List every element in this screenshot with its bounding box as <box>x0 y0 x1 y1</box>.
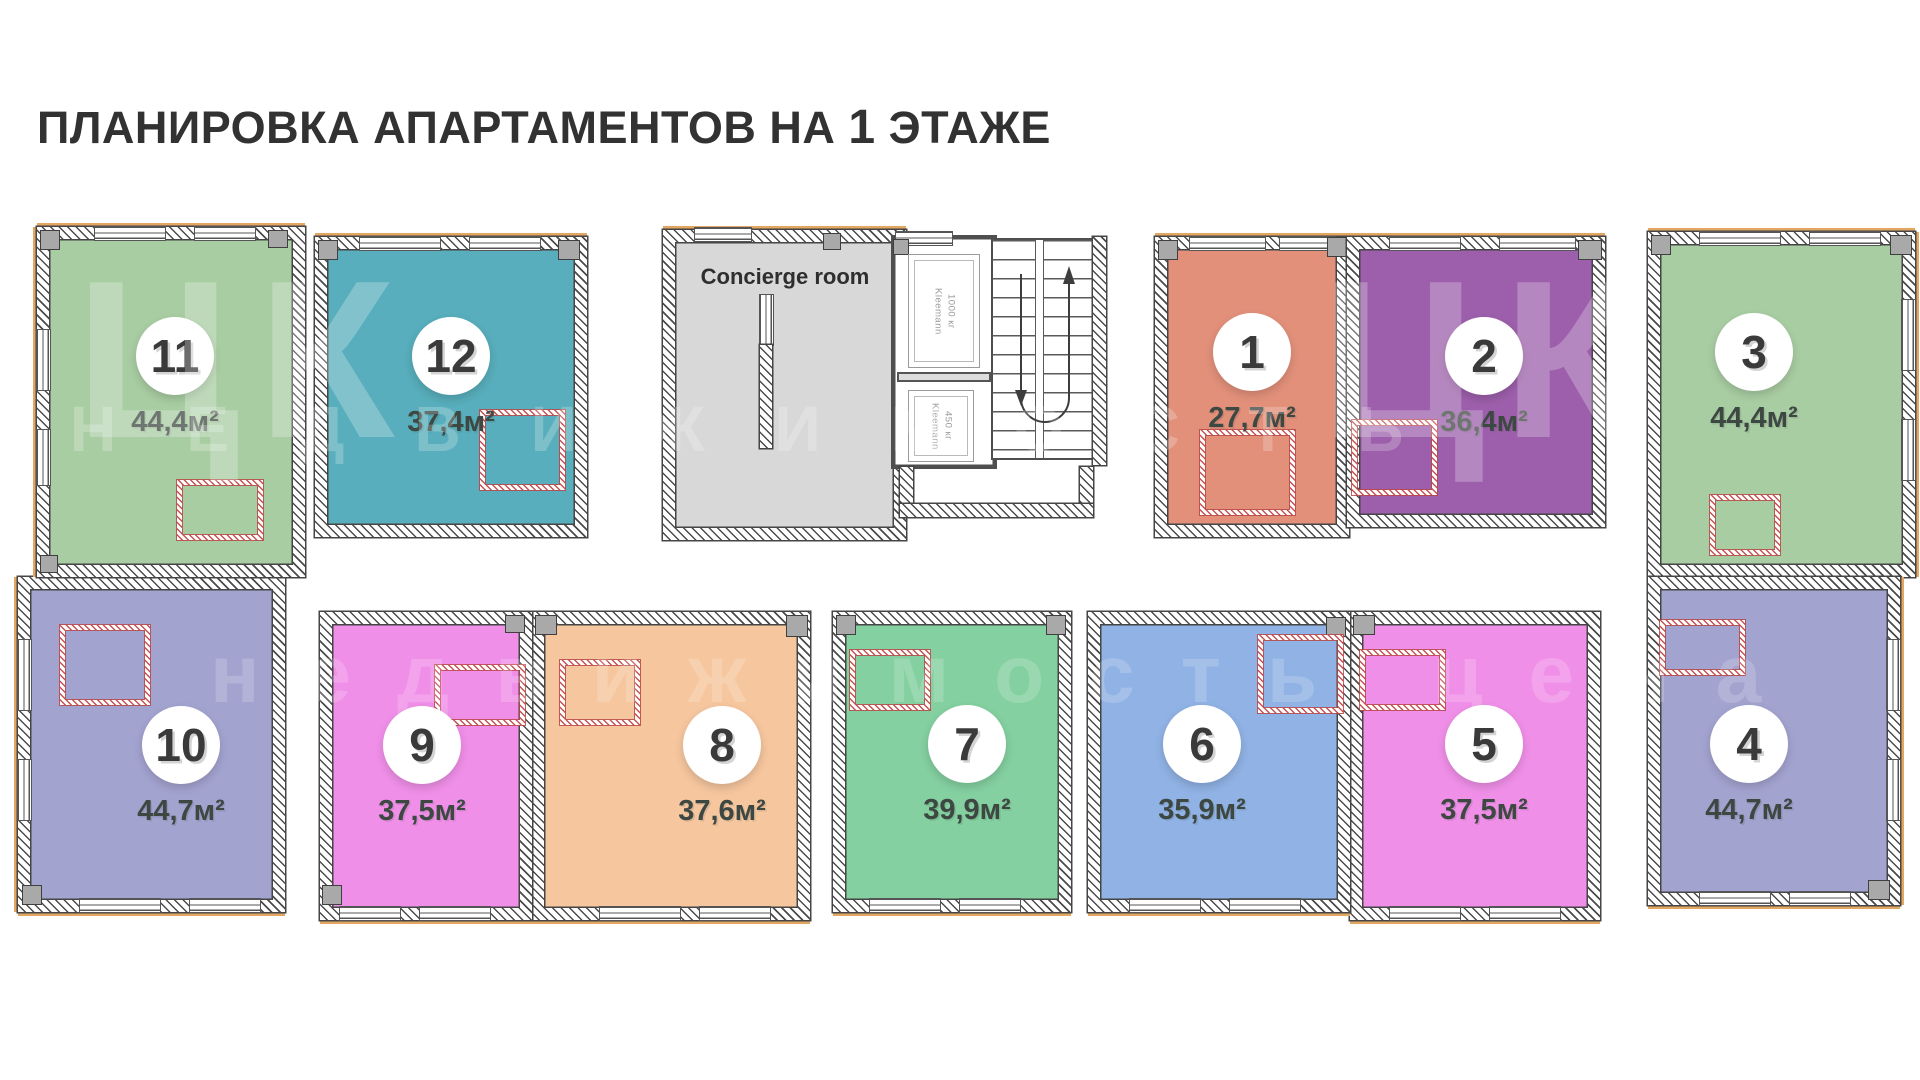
column <box>1890 235 1912 255</box>
window <box>1390 237 1460 250</box>
concierge-room-label: Concierge room <box>665 264 905 290</box>
column <box>786 615 808 637</box>
partition-wall <box>60 625 150 705</box>
apartment-number: 4 <box>1736 717 1762 771</box>
apartment-number: 10 <box>155 718 206 772</box>
elevator-capacity-label: 1000 кг <box>945 294 957 329</box>
apartment-12-number-badge[interactable]: 12 <box>412 317 490 395</box>
column <box>893 239 909 255</box>
column <box>40 230 60 250</box>
column <box>1353 615 1375 635</box>
window <box>80 899 160 912</box>
window <box>1902 420 1915 480</box>
apartment-11-area-label: 44,4м² <box>65 406 285 439</box>
apartment-number: 7 <box>954 717 980 771</box>
window <box>18 640 31 710</box>
window <box>190 899 260 912</box>
partition-wall <box>1360 650 1445 710</box>
window <box>1490 907 1560 920</box>
column <box>318 240 338 260</box>
column <box>823 233 841 250</box>
window <box>1902 300 1915 370</box>
apartment-4-number-badge[interactable]: 4 <box>1710 705 1788 783</box>
window <box>1700 892 1770 905</box>
apartment-number: 2 <box>1471 329 1497 383</box>
apartment-1-area-label: 27,7м² <box>1142 402 1362 435</box>
column <box>22 885 42 905</box>
apartment-9-number-badge[interactable]: 9 <box>383 706 461 784</box>
column <box>322 885 342 905</box>
apartment-3-number-badge[interactable]: 3 <box>1715 313 1793 391</box>
column <box>1046 615 1066 635</box>
apartment-number: 11 <box>151 329 200 383</box>
elevator-cabin-small-inner: Kleemann 450 кг <box>914 396 968 456</box>
column <box>535 615 557 635</box>
apartment-4-area-label: 44,7м² <box>1639 794 1859 827</box>
window <box>195 227 255 240</box>
lobby-wall <box>900 504 1093 517</box>
apartment-6-area-label: 35,9м² <box>1092 794 1312 827</box>
window <box>360 237 440 250</box>
window <box>340 907 400 920</box>
window <box>1130 899 1200 912</box>
apartment-2-area-label: 36,4м² <box>1374 406 1594 439</box>
apartment-10-number-badge[interactable]: 10 <box>142 706 220 784</box>
apartment-7-area-label: 39,9м² <box>857 794 1077 827</box>
apartment-6-number-badge[interactable]: 6 <box>1163 705 1241 783</box>
window <box>760 295 773 345</box>
window <box>37 330 50 390</box>
column <box>505 615 525 633</box>
column <box>836 615 856 635</box>
window <box>1790 892 1850 905</box>
apartment-10-area-label: 44,7м² <box>71 795 291 828</box>
apartment-number: 3 <box>1741 325 1767 379</box>
apartment-number: 1 <box>1239 325 1265 379</box>
apartment-number: 8 <box>709 718 735 772</box>
window <box>1887 760 1900 820</box>
partition-wall <box>177 480 263 540</box>
apartment-number: 5 <box>1471 717 1497 771</box>
apartment-number: 12 <box>425 329 476 383</box>
elevator-capacity-label: 450 кг <box>942 411 954 440</box>
apartment-12-area-label: 37,4м² <box>341 406 561 439</box>
partition-wall <box>1710 495 1780 555</box>
window <box>37 430 50 485</box>
stair-wall <box>1093 237 1106 465</box>
column <box>1158 240 1178 260</box>
window <box>700 907 770 920</box>
elevator-brand-label: Kleemann <box>929 403 941 450</box>
window <box>1390 907 1460 920</box>
column <box>268 230 288 248</box>
window <box>18 760 31 820</box>
partition-wall <box>560 660 640 725</box>
apartment-8-area-label: 37,6м² <box>612 795 832 828</box>
window <box>600 907 680 920</box>
window <box>1887 640 1900 710</box>
elevator-brand-label: Kleemann <box>932 288 944 335</box>
window <box>695 228 751 241</box>
apartment-number: 9 <box>409 718 435 772</box>
apartment-7-number-badge[interactable]: 7 <box>928 705 1006 783</box>
window <box>1190 237 1265 250</box>
column <box>1651 235 1671 255</box>
apartment-11-number-badge[interactable]: 11 <box>136 317 214 395</box>
stair-direction-arrow <box>993 240 1093 458</box>
window <box>1500 237 1575 250</box>
concierge-partition-wall <box>760 345 772 448</box>
apartment-5-area-label: 37,5м² <box>1374 794 1594 827</box>
window <box>1700 232 1780 245</box>
floor-plan-page: ПЛАНИРОВКА АПАРТАМЕНТОВ НА 1 ЭТАЖЕ Conci… <box>0 0 1920 1080</box>
apartment-2-number-badge[interactable]: 2 <box>1445 317 1523 395</box>
window <box>420 907 490 920</box>
elevator-cabin-large-inner: Kleemann 1000 кг <box>914 260 974 362</box>
elevator-cabin-small: Kleemann 450 кг <box>908 390 974 462</box>
column <box>1578 240 1602 260</box>
column <box>1326 617 1346 637</box>
apartment-3-area-label: 44,4м² <box>1644 402 1864 435</box>
partition-wall <box>1660 620 1745 675</box>
staircase <box>993 240 1093 458</box>
apartment-5-number-badge[interactable]: 5 <box>1445 705 1523 783</box>
partition-wall <box>850 650 930 710</box>
window <box>1230 899 1300 912</box>
window <box>95 227 165 240</box>
column <box>40 555 58 573</box>
apartment-11[interactable] <box>37 227 305 577</box>
window <box>960 899 1020 912</box>
column <box>558 240 580 260</box>
elevator-cabin-large: Kleemann 1000 кг <box>908 254 980 368</box>
window <box>470 237 540 250</box>
partition-wall <box>1200 430 1295 515</box>
partition-wall <box>1258 635 1343 713</box>
apartment-8[interactable] <box>532 612 810 920</box>
apartment-8-number-badge[interactable]: 8 <box>683 706 761 784</box>
apartment-1-number-badge[interactable]: 1 <box>1213 313 1291 391</box>
window <box>1810 232 1880 245</box>
column <box>1327 237 1349 257</box>
column <box>1868 880 1890 900</box>
shaft-divider-wall <box>897 372 991 382</box>
apartment-number: 6 <box>1189 717 1215 771</box>
window <box>870 899 940 912</box>
floor-plan-canvas: Concierge room Kleemann 1000 кг Kleemann… <box>0 0 1920 1080</box>
apartment-9-area-label: 37,5м² <box>312 795 532 828</box>
